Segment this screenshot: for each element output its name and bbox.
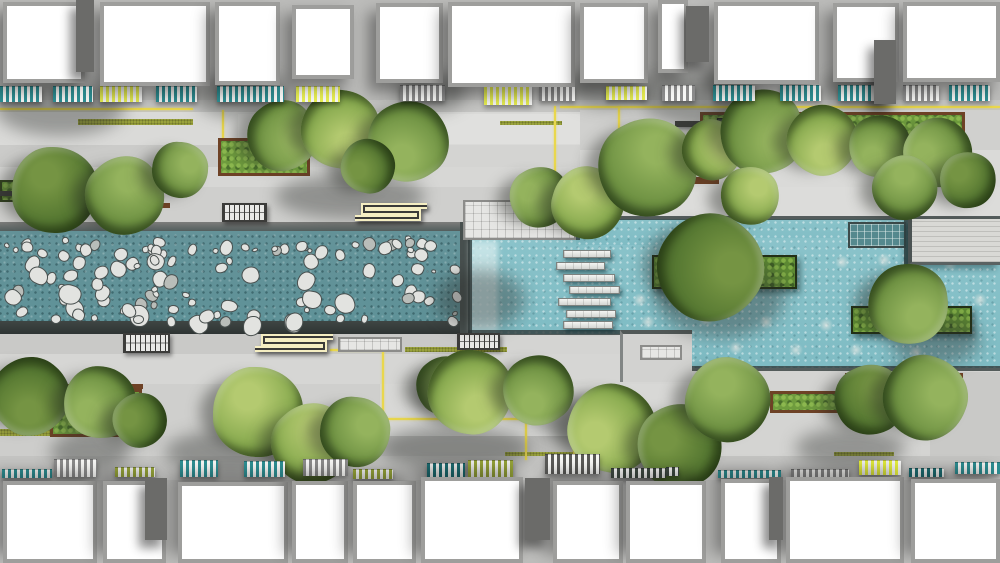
building [292,5,354,79]
channel-wall-south [0,321,478,334]
awning-gray [791,469,849,477]
awning-yellow [100,86,142,102]
building [903,2,1000,82]
building-core [525,478,550,540]
building [100,2,210,86]
waterside-deck [908,219,1000,265]
building [353,481,416,563]
awning-darkstripe [666,467,679,476]
building [714,2,819,84]
stone [431,269,436,274]
stone [295,240,307,251]
building-core [76,0,94,72]
building [376,3,443,83]
stepping-plank [566,310,616,318]
building [658,0,688,73]
awning-teal [217,86,284,102]
building-core [686,6,709,62]
stair-with-railing [222,203,267,222]
lap-pool [848,222,906,248]
shadow-blob [435,270,525,330]
stepping-plank [563,321,613,329]
building-core [769,477,783,540]
grass-strip [500,121,562,125]
building [553,481,623,563]
building [626,481,706,563]
awning-darkteal [909,468,944,477]
stair-with-railing [457,333,500,350]
stone [407,246,415,253]
awning-gray [54,459,97,477]
awning-teal [244,461,285,477]
stepping-stone-dot [633,293,647,307]
awning-teal [180,460,218,477]
awning-gray [903,85,939,101]
awning-gray [662,85,695,101]
stepping-stone-dot [641,315,655,329]
building [215,2,280,85]
awning-teal [156,86,197,102]
awning-yellow [296,86,340,102]
stepping-plank [563,274,615,282]
s-bench [252,333,336,353]
building [3,481,97,563]
awning-teal [53,86,93,102]
awning-yellowbright [859,460,901,475]
stone [241,243,250,251]
building [911,479,1000,563]
building [3,2,85,83]
building-core [145,478,167,540]
stepping-stone-dot [729,341,743,355]
stepping-plank [558,298,611,306]
stepping-stone-dot [877,253,891,267]
awning-olive [468,460,513,477]
awning-yellow [606,86,647,100]
awning-olive [115,467,155,477]
building [580,3,648,83]
awning-gray [400,85,445,101]
building [178,482,288,563]
awning-darkgray [545,454,600,474]
awning-teal [713,85,755,101]
awning-darkteal [427,463,465,477]
s-bench [352,202,430,222]
building [786,477,904,563]
building [292,481,348,563]
awning-teal [2,469,52,478]
awning-teal [780,85,821,101]
awning-teal [955,462,1000,474]
site-plan [0,0,1000,563]
stair-with-railing [123,333,170,353]
awning-yellow [484,85,532,105]
building [421,477,523,563]
awning-olive [353,469,393,479]
stepping-plank [569,286,620,294]
building [448,2,575,87]
stepping-stone-dot [789,343,803,357]
awning-darkstripe [611,468,666,478]
stepping-stone-dot [849,343,863,357]
grid-panel [338,337,402,352]
awning-gray [539,85,575,101]
grid-panel [640,345,682,360]
stepping-plank [556,262,605,270]
stepping-stone-dot [973,293,987,307]
awning-teal [949,85,990,101]
awning-teal [0,86,42,102]
building-core [874,40,896,104]
stepping-stone-dot [835,255,849,269]
stepping-plank [563,250,611,258]
stepping-stone-dot [819,318,833,332]
awning-gray [303,459,348,476]
